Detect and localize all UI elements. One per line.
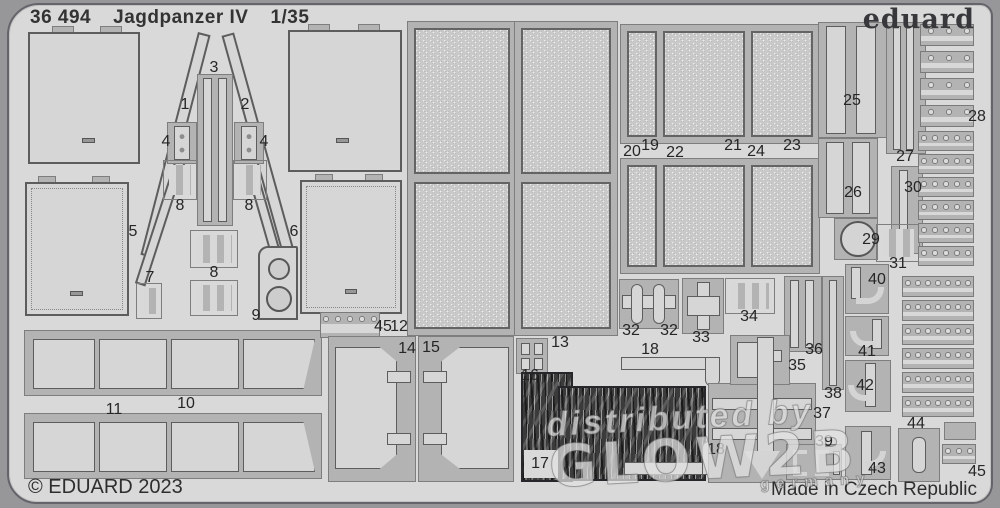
part-27-rail (906, 26, 914, 150)
part-number-label: 21 (724, 137, 742, 155)
part-37-column (757, 337, 774, 453)
part-13-mesh-grille (521, 28, 611, 174)
part-number-label: 9 (252, 307, 261, 325)
part-number-label: 40 (868, 271, 886, 289)
part-number-label: 14 (398, 340, 416, 358)
part-10-panel (243, 339, 315, 389)
part-32-pill (653, 284, 665, 324)
sheet-scale: 1/35 (270, 7, 309, 28)
panel-slot (70, 291, 83, 296)
part-number-label: 31 (889, 255, 907, 273)
part-number-label: 38 (824, 385, 842, 403)
part-28-bolt-strip (920, 78, 974, 100)
part-number-label: 23 (783, 137, 801, 155)
bolt-strip-7pin (902, 372, 974, 393)
part-15-hinge (423, 371, 447, 383)
panel-slot (345, 289, 357, 294)
part-10-panel (33, 339, 95, 389)
large-panel-top-left (28, 32, 140, 164)
part-13-mesh-grille (521, 182, 611, 329)
bolt-strip-7pin (902, 396, 974, 417)
part-18-tube (624, 462, 712, 475)
part-36-strip (805, 280, 814, 348)
part-45-pin-strip (320, 312, 380, 338)
part-21-22-mesh (663, 31, 745, 137)
part-number-label: 4 (162, 133, 171, 151)
part-number-label: 26 (844, 184, 862, 202)
part-16-pad (521, 343, 530, 355)
part-3-rail (203, 78, 212, 222)
part-number-label: 17 (531, 455, 549, 473)
part-32-pill (631, 284, 643, 324)
part-19-20-mesh (627, 165, 657, 267)
part-33-frame (682, 278, 724, 334)
part-5-panel (25, 182, 129, 316)
bolt-strip-5pin (918, 200, 974, 220)
bolt-strip-7pin (902, 324, 974, 345)
part-number-label: 27 (896, 148, 914, 166)
part-35-strip (790, 280, 799, 348)
copyright-text: © EDUARD 2023 (28, 476, 183, 499)
part-15-hatch (441, 347, 509, 469)
part-26-bracket (826, 142, 844, 214)
part-10-panel (171, 339, 239, 389)
part-9-hole (268, 258, 290, 280)
part-39-bracket (793, 450, 807, 476)
part-23-24-mesh (751, 165, 813, 267)
part-number-label: 4 (260, 133, 269, 151)
part-12-mesh-grille (414, 28, 510, 174)
part-number-label: 28 (968, 108, 986, 126)
part-8-plate (233, 160, 267, 200)
part-number-label: 5 (129, 223, 138, 241)
part-number-label: 10 (177, 395, 195, 413)
part-26-bracket (852, 142, 870, 214)
part-15-hinge (423, 433, 447, 445)
part-28-bolt-strip (920, 51, 974, 73)
part-15-frame (418, 336, 514, 482)
eduard-logo: eduard (855, 4, 975, 35)
part-21-22-mesh (663, 165, 745, 267)
part-39-frame (786, 444, 842, 480)
part-number-label: 6 (290, 223, 299, 241)
part-number-label: 18 (707, 441, 725, 459)
part-number-label: 30 (904, 179, 922, 197)
part-number-label: 36 (805, 341, 823, 359)
part-11-panel (171, 422, 239, 472)
part-6-panel (300, 180, 402, 314)
part-number-label: 22 (666, 144, 684, 162)
part-18-tube (621, 357, 713, 370)
part-39-bracket (815, 450, 829, 476)
part-number-label: 16 (521, 367, 539, 385)
part-number-label: 20 (623, 143, 641, 161)
part-number-label: 32 (660, 322, 678, 340)
part-39-pin (833, 451, 840, 475)
part-14-hinge (387, 371, 411, 383)
part-10-frame (24, 330, 322, 396)
part-number-label: 43 (868, 460, 886, 478)
part-23-24-mesh (751, 31, 813, 137)
bolt-strip-5pin (918, 131, 974, 151)
part-14-hatch (335, 347, 397, 469)
large-panel-top-center (288, 30, 402, 172)
part-9-bracket (258, 246, 298, 320)
part-38-strip (829, 280, 837, 386)
part-19-20-mesh (627, 31, 657, 137)
part-8-plate (190, 280, 238, 316)
part-16-pad (534, 343, 543, 355)
part-number-label: 44 (907, 415, 925, 433)
bolt-strip-7pin (902, 348, 974, 369)
part-25-bracket (826, 26, 846, 134)
part-number-label: 8 (245, 197, 254, 215)
bolt-strip-5pin (918, 154, 974, 174)
photoetch-sheet-photo: { "header": { "catalog_number": "36 494"… (0, 0, 1000, 508)
part-25-bracket (856, 26, 876, 134)
part-number-label: 45 (374, 318, 392, 336)
part-40-hook (856, 287, 884, 304)
part-number-label: 32 (622, 322, 640, 340)
part-number-label: 34 (740, 308, 758, 326)
part-7-plate (136, 283, 162, 319)
part-11-panel (33, 422, 95, 472)
part-number-label: 19 (641, 137, 659, 155)
panel-slot (82, 138, 95, 143)
part-45-pin-strip (942, 444, 976, 464)
part-9-hole (266, 286, 292, 312)
small-plate (944, 422, 976, 440)
part-number-label: 41 (858, 343, 876, 361)
part-33-cross-h (687, 296, 720, 316)
part-number-label: 12 (390, 318, 408, 336)
part-number-label: 24 (747, 143, 765, 161)
made-in-text: Made in Czech Republic (713, 479, 977, 501)
part-number-label: 11 (106, 401, 123, 419)
part-10-panel (99, 339, 167, 389)
part-number-label: 25 (843, 92, 861, 110)
part-number-label: 29 (862, 231, 880, 249)
bolt-strip-7pin (902, 300, 974, 321)
part-number-label: 18 (641, 341, 659, 359)
part-11-frame (24, 413, 322, 479)
part-4-bracket (174, 126, 190, 160)
part-11-panel (243, 422, 315, 472)
part-number-label: 8 (210, 264, 219, 282)
part-8-plate (190, 230, 238, 268)
part-4-bracket (241, 126, 257, 160)
panel-slot (336, 138, 349, 143)
part-27-rail (893, 26, 901, 150)
part-number-label: 15 (422, 339, 440, 357)
part-28-bolt-strip (920, 105, 974, 127)
bolt-strip-7pin (902, 276, 974, 297)
sheet-title: Jagdpanzer IV (113, 7, 248, 28)
part-number-label: 42 (856, 377, 874, 395)
part-8-plate (163, 160, 197, 200)
part-3-rail (218, 78, 227, 222)
part-44-frame (898, 428, 940, 482)
part-number-label: 1 (181, 96, 190, 114)
bolt-strip-5pin (918, 246, 974, 266)
part-number-label: 7 (146, 269, 155, 287)
part-number-label: 8 (176, 197, 185, 215)
part-number-label: 35 (788, 357, 806, 375)
part-number-label: 3 (210, 59, 219, 77)
part-number-label: 2 (241, 96, 250, 114)
part-11-panel (99, 422, 167, 472)
bolt-strip-5pin (918, 177, 974, 197)
sheet-header: 36 494Jagdpanzer IV1/35 (30, 7, 331, 29)
part-14-hinge (387, 433, 411, 445)
part-37-foot (744, 451, 780, 479)
part-12-mesh-grille (414, 182, 510, 329)
part-number-label: 33 (692, 329, 710, 347)
part-number-label: 39 (815, 433, 833, 451)
bolt-strip-5pin (918, 223, 974, 243)
part-number-label: 13 (551, 334, 569, 352)
part-number-label: 37 (813, 405, 831, 423)
part-44-pill (912, 437, 926, 473)
catalog-number: 36 494 (30, 7, 91, 28)
